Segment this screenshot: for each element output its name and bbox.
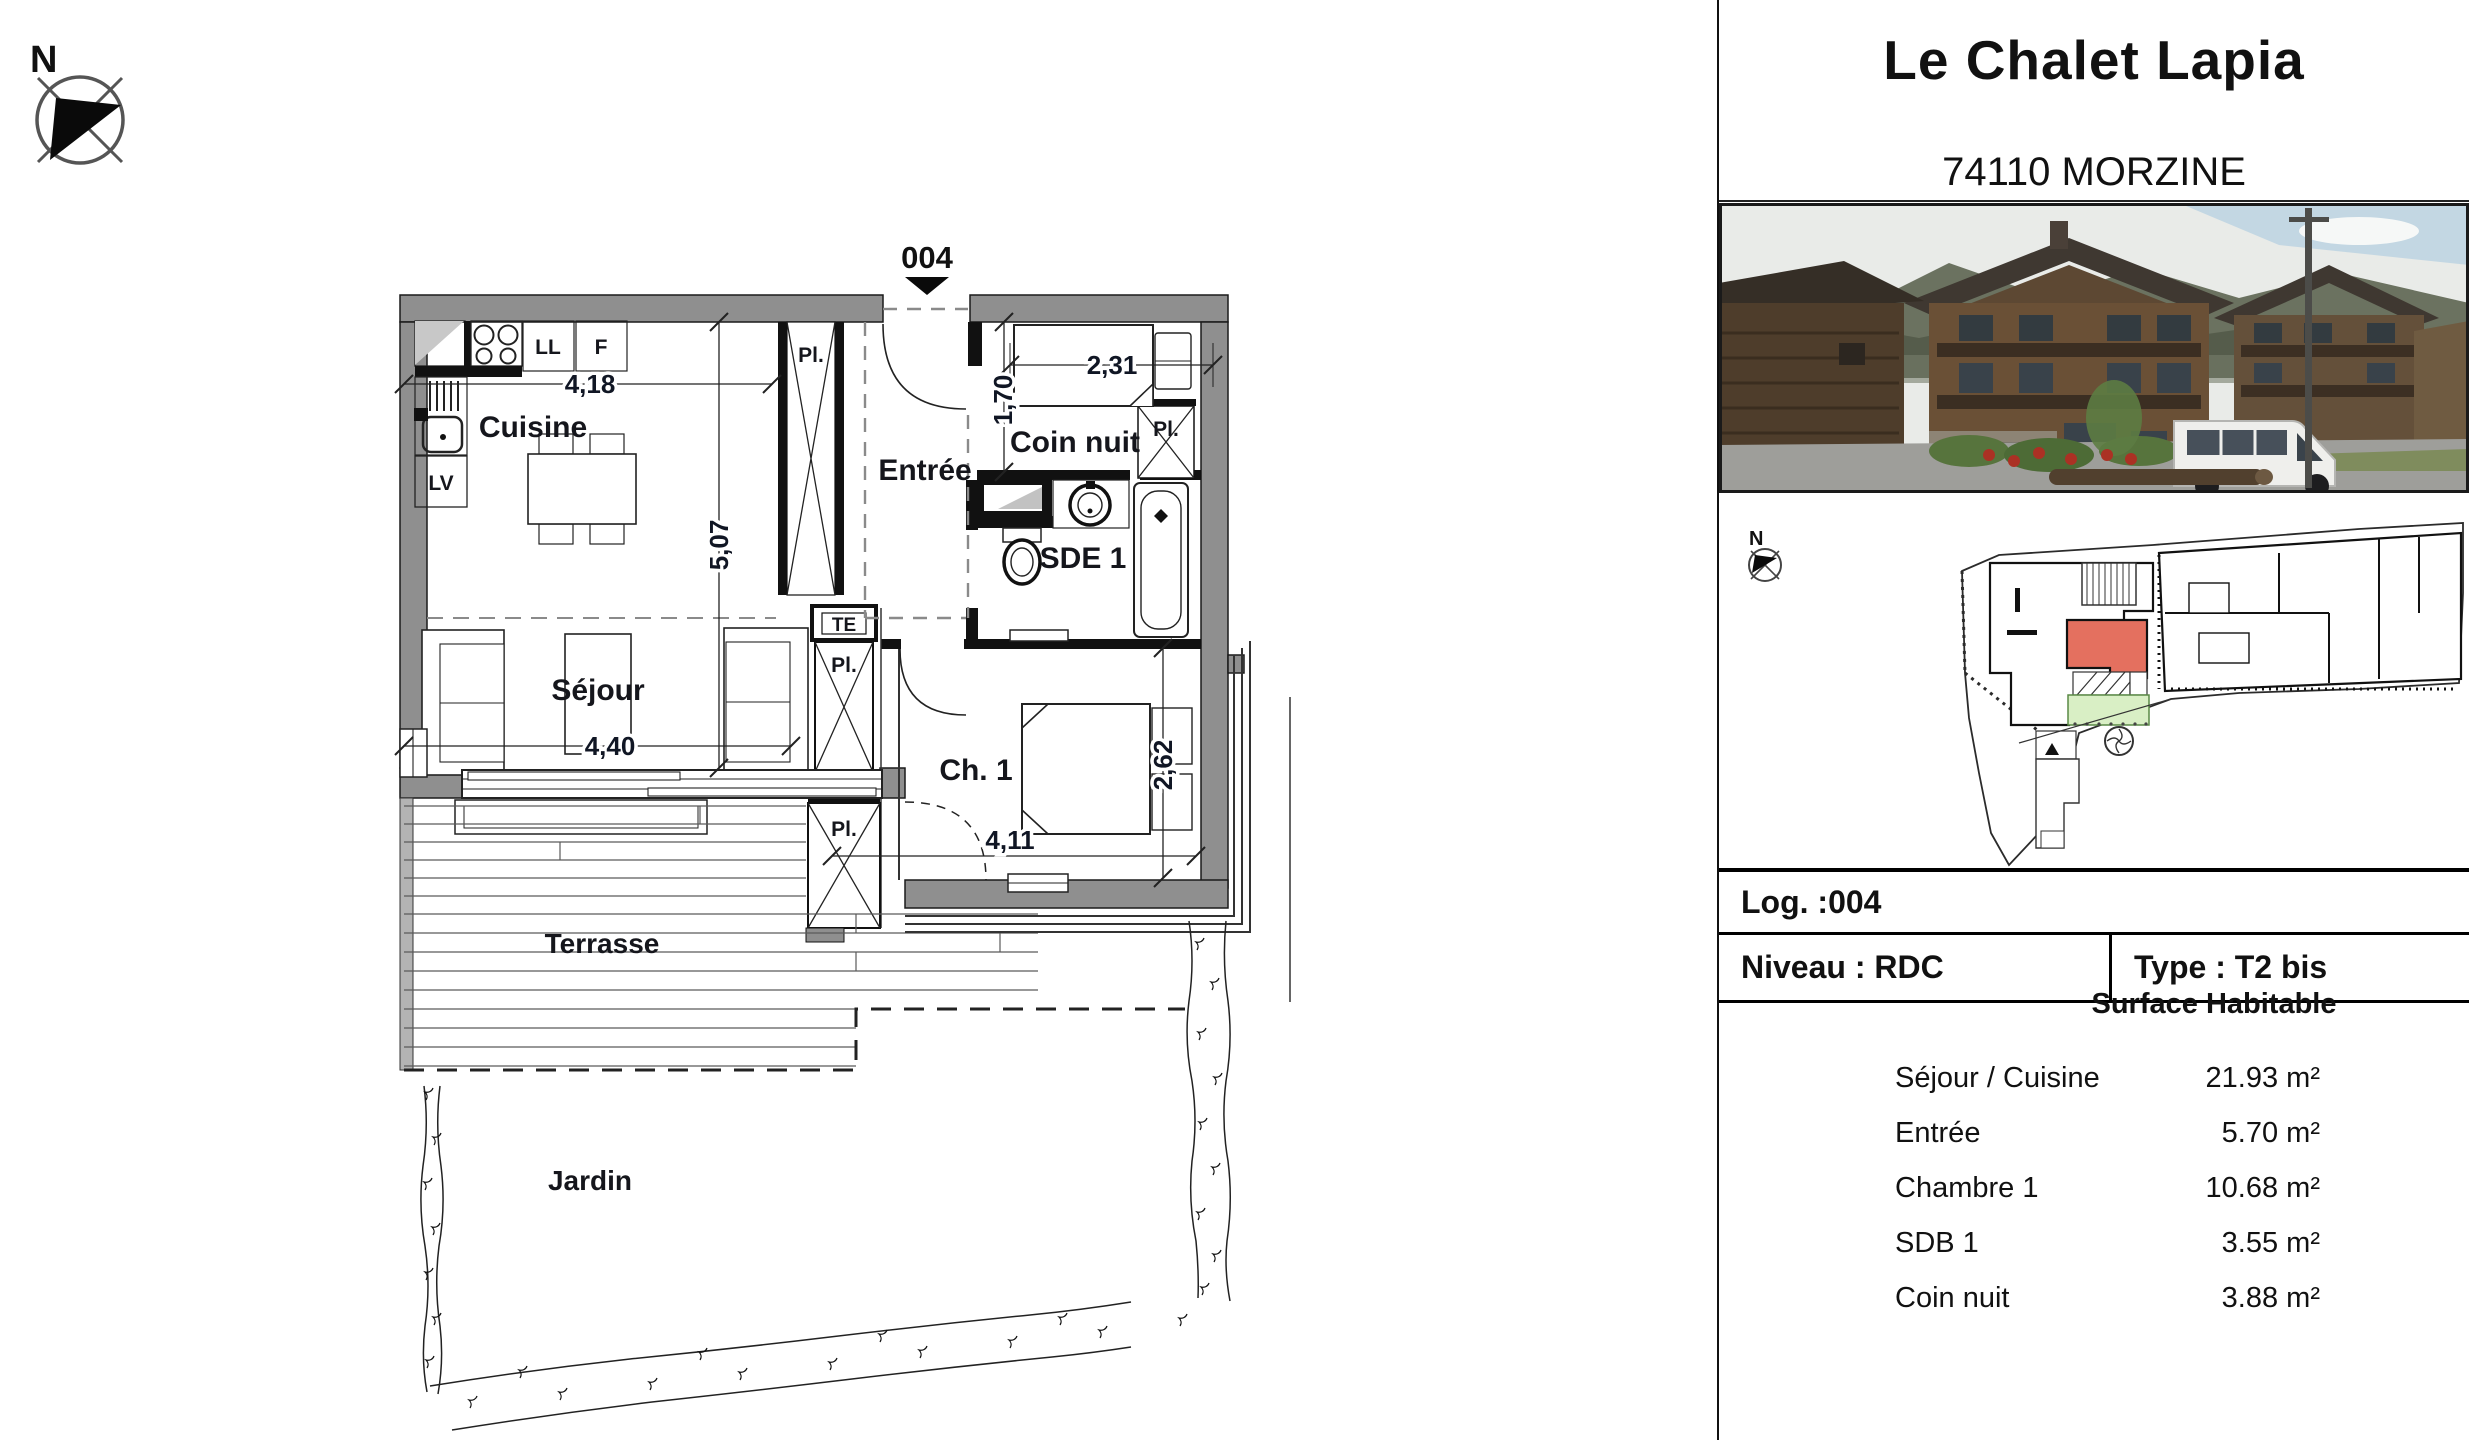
room-label-terrasse: Terrasse xyxy=(545,928,660,959)
room-label-entree: Entrée xyxy=(878,454,971,487)
closet-label: Pl. xyxy=(831,654,857,677)
north-label: N xyxy=(30,39,57,81)
project-photo xyxy=(1719,203,2469,493)
site-hatch xyxy=(2073,672,2130,695)
dining-table xyxy=(528,434,636,544)
dim-coin-nuit-depth: 1,70 xyxy=(988,375,1018,426)
entry-arrow-icon xyxy=(905,277,949,295)
unit-number-label: 004 xyxy=(901,240,953,275)
surface-row-label: Séjour / Cuisine xyxy=(1895,1062,2100,1095)
surface-row-label: Chambre 1 xyxy=(1895,1172,2038,1205)
surface-row-label: Coin nuit xyxy=(1895,1282,2009,1315)
project-title: Le Chalet Lapia xyxy=(1719,28,2469,92)
floor-plan: N 004 Pl. xyxy=(0,0,1717,1440)
entry-door-arc xyxy=(883,324,966,409)
page: { "compass": { "label": "N" }, "floor_pl… xyxy=(0,0,2469,1440)
surface-row-label: SDB 1 xyxy=(1895,1227,1979,1260)
dim-sejour-height: 5,07 xyxy=(704,520,734,571)
room-label-jardin: Jardin xyxy=(548,1165,632,1196)
surface-row-label: Entrée xyxy=(1895,1117,1980,1150)
terrace-decking xyxy=(404,806,1038,1066)
site-plan: N xyxy=(1719,493,2469,868)
north-compass-icon: N xyxy=(30,39,123,163)
room-label-cuisine: Cuisine xyxy=(479,411,587,444)
site-terrace-highlight xyxy=(2068,695,2149,725)
terrace-boundary-dashed xyxy=(404,1009,1185,1070)
bathtub-icon xyxy=(1134,483,1188,637)
room-label-coin-nuit: Coin nuit xyxy=(1010,426,1140,459)
title-block: Le Chalet Lapia 74110 MORZINE xyxy=(1719,0,2469,202)
bedroom-door-arc xyxy=(900,649,966,715)
dim-chambre-width: 4,11 xyxy=(985,825,1034,855)
surface-row-value: 5.70 m² xyxy=(2222,1117,2320,1150)
closet-label: Pl. xyxy=(1153,418,1179,441)
faucet-icon xyxy=(414,408,428,421)
unit-entry-marker: 004 xyxy=(901,240,953,295)
dim-sejour-width: 4,40 xyxy=(585,731,636,761)
surface-row: Coin nuit 3.88 m² xyxy=(1719,1270,2469,1325)
site-north-label: N xyxy=(1749,528,1763,550)
site-north-compass: N xyxy=(1749,528,1781,581)
project-address: 74110 MORZINE xyxy=(1719,150,2469,195)
room-label-sde1: SDE 1 xyxy=(1040,542,1127,575)
bedroom-window-swing xyxy=(905,802,986,880)
dim-chambre-depth: 2,62 xyxy=(1148,740,1178,791)
surface-row: Séjour / Cuisine 21.93 m² xyxy=(1719,1050,2469,1105)
dishwasher-label: LV xyxy=(428,472,453,495)
surface-row: Entrée 5.70 m² xyxy=(1719,1105,2469,1160)
electrical-panel-label: TE xyxy=(832,615,856,636)
surface-table: Séjour / Cuisine 21.93 m² Entrée 5.70 m²… xyxy=(1719,1050,2469,1325)
washbasin-icon xyxy=(1070,485,1110,525)
dim-coin-nuit-width: 2,31 xyxy=(1087,350,1138,380)
surface-row-value: 3.88 m² xyxy=(2222,1282,2320,1315)
surface-row-value: 3.55 m² xyxy=(2222,1227,2320,1260)
log-number: Log. :004 xyxy=(1741,884,1881,921)
closet-label: Pl. xyxy=(831,818,857,841)
log-row: Log. :004 xyxy=(1719,868,2469,935)
site-stairs xyxy=(2082,563,2136,605)
info-panel: Le Chalet Lapia 74110 MORZINE xyxy=(1717,0,2469,1440)
room-label-sejour: Séjour xyxy=(551,674,645,707)
surface-row-value: 10.68 m² xyxy=(2206,1172,2320,1205)
garden-hedges xyxy=(421,921,1230,1430)
dim-cuisine-width: 4,18 xyxy=(565,369,616,399)
washer-label: LL xyxy=(535,336,561,359)
site-building-east xyxy=(2159,533,2461,691)
fridge-label: F xyxy=(595,336,608,359)
wc-icon xyxy=(1004,540,1040,584)
terrace-left-wall xyxy=(400,798,413,1070)
closet-label: Pl. xyxy=(798,344,824,367)
room-label-chambre1: Ch. 1 xyxy=(939,754,1012,787)
surface-row: SDB 1 3.55 m² xyxy=(1719,1215,2469,1270)
surface-row-value: 21.93 m² xyxy=(2206,1062,2320,1095)
surface-row: Chambre 1 10.68 m² xyxy=(1719,1160,2469,1215)
surface-table-title: Surface Habitable xyxy=(2049,988,2379,1022)
